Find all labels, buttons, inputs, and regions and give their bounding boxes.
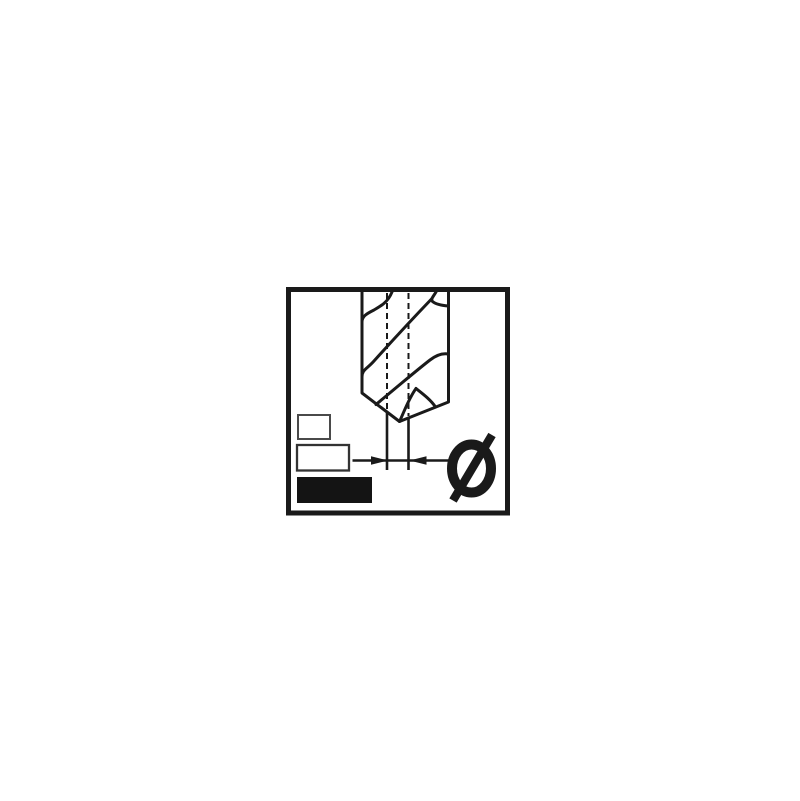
legend-rect-filled xyxy=(297,477,372,503)
legend-rect-medium xyxy=(297,445,349,471)
legend-rect-small xyxy=(298,415,330,439)
page-canvas: Ø xyxy=(0,0,800,800)
drill-diameter-pictogram xyxy=(0,0,800,800)
